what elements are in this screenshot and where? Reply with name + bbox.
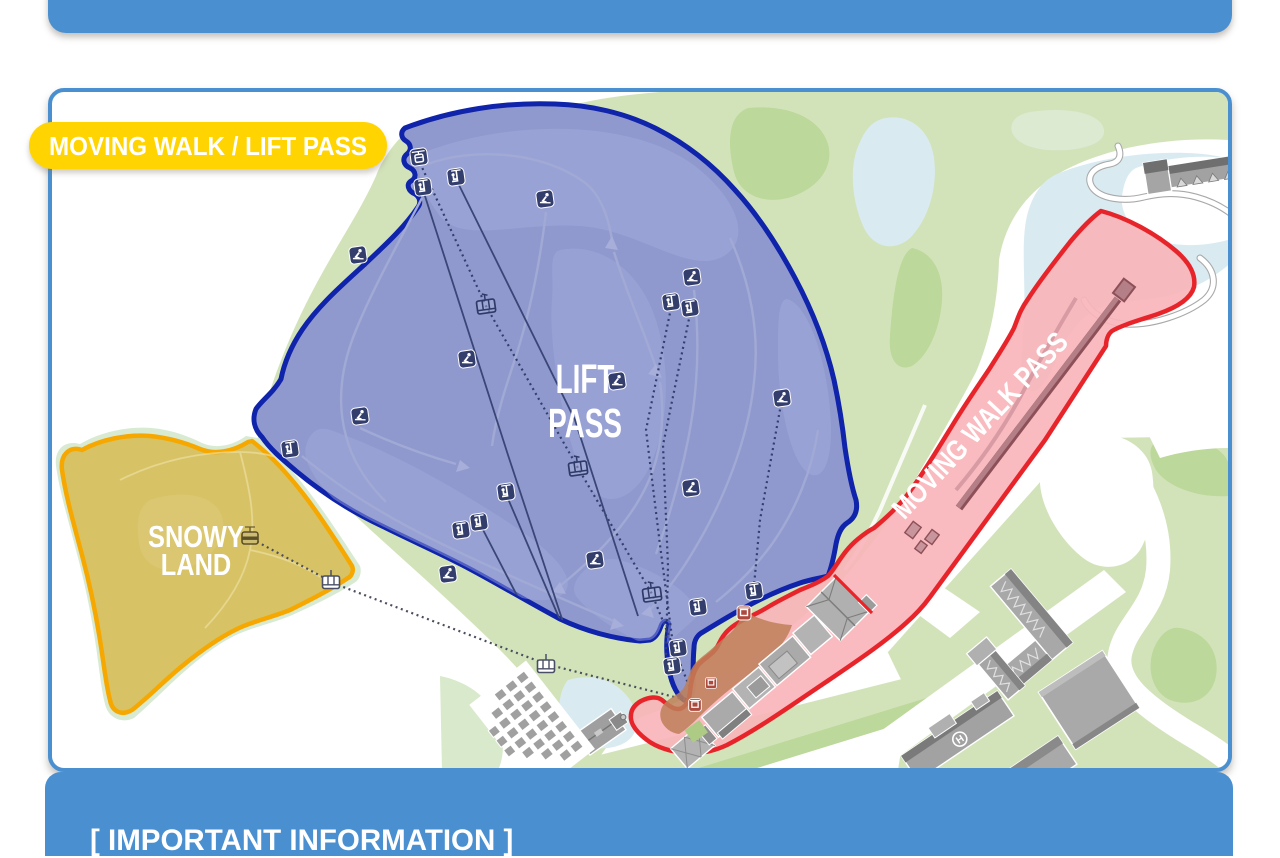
- svg-text:PASS: PASS: [548, 401, 622, 447]
- svg-text:LIFT: LIFT: [556, 357, 615, 403]
- svg-text:LAND: LAND: [161, 548, 232, 583]
